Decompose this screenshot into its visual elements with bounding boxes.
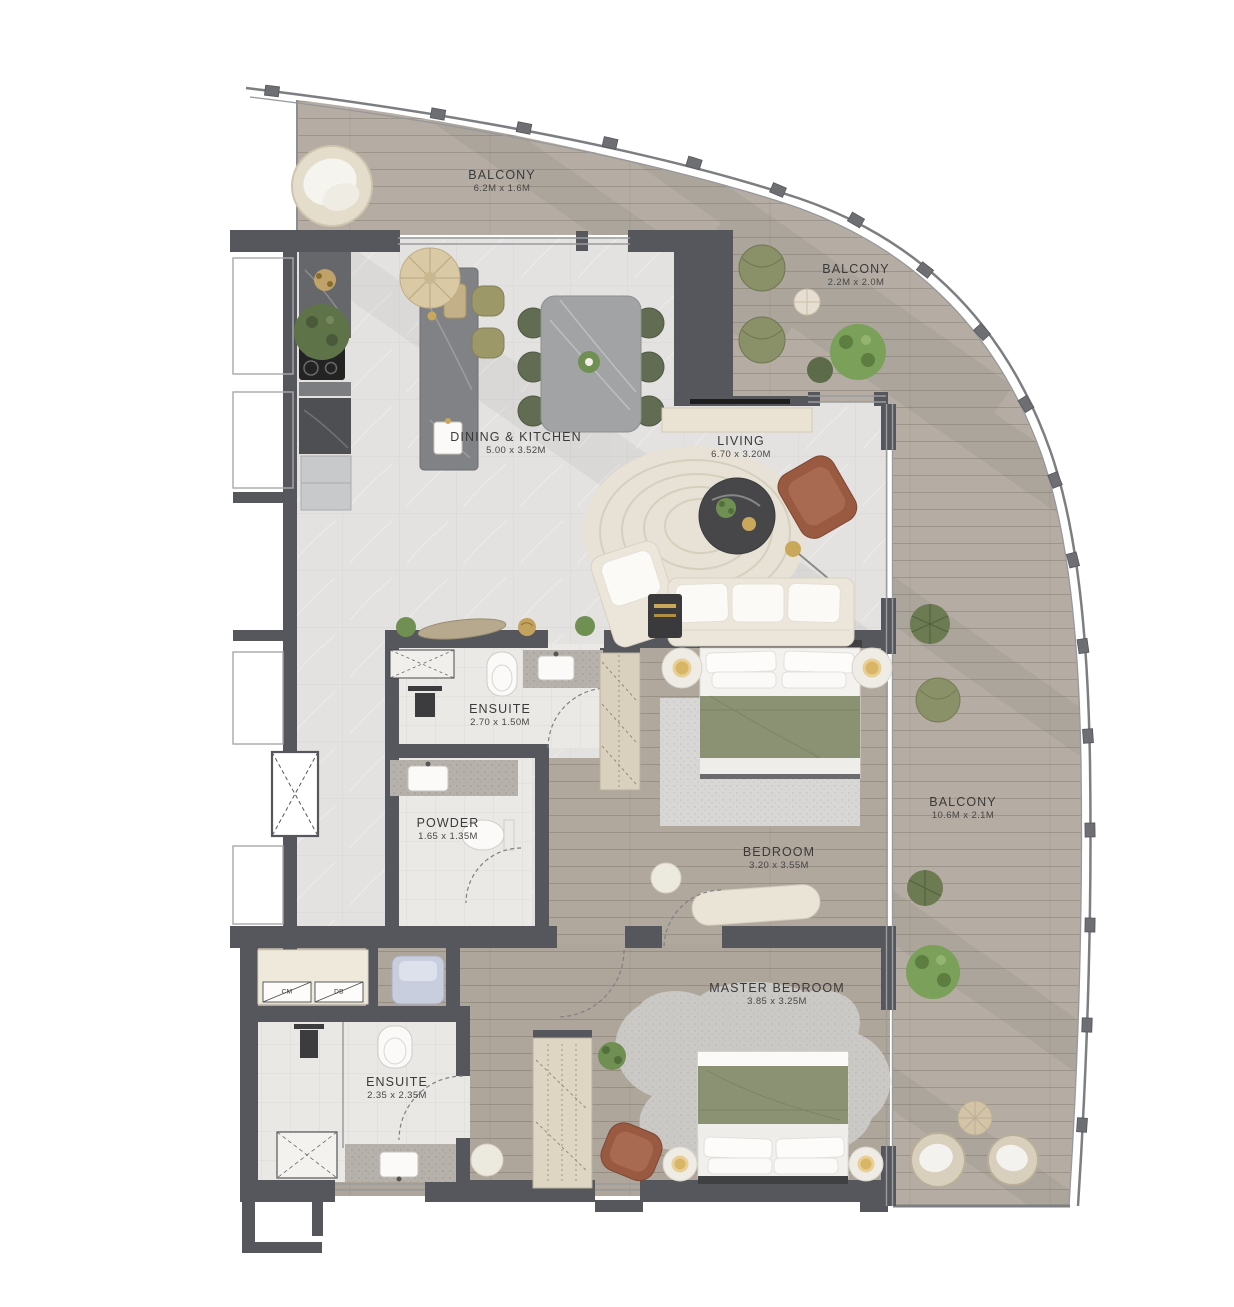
tv <box>690 399 790 404</box>
floor-plan-drawing <box>0 0 1234 1307</box>
plant <box>294 304 350 360</box>
grass <box>910 604 950 644</box>
tree <box>830 324 886 380</box>
grass <box>807 357 833 383</box>
shower-pan <box>277 1132 337 1178</box>
plant <box>598 1042 626 1070</box>
master-wardrobe <box>533 1038 592 1188</box>
pillow <box>784 651 855 673</box>
rattan-lounge-chair <box>911 1133 965 1187</box>
vanity <box>345 1144 456 1182</box>
pillow <box>774 1158 838 1174</box>
toilet <box>378 1026 412 1068</box>
rattan-pouf <box>794 289 820 315</box>
headboard <box>698 1176 848 1184</box>
vanity <box>523 650 603 688</box>
olive-cushion <box>916 678 960 722</box>
dining-set <box>518 296 664 432</box>
bed <box>700 648 860 779</box>
duvet <box>700 696 860 758</box>
tree <box>906 945 960 999</box>
wardrobe <box>600 653 640 790</box>
olive-daybed <box>739 245 785 291</box>
table-plant <box>716 498 736 518</box>
vanity <box>390 760 518 796</box>
pillow <box>782 672 846 688</box>
plant <box>396 617 416 637</box>
toilet <box>487 652 517 696</box>
master-bed <box>698 1052 848 1184</box>
pillow <box>706 651 777 673</box>
pillow <box>708 1158 772 1174</box>
rattan-pouf <box>400 248 460 308</box>
pouf <box>471 1144 503 1176</box>
grass <box>907 870 943 906</box>
sofa <box>668 578 854 646</box>
nightstand-lamp <box>852 648 892 688</box>
olive-daybed <box>739 317 785 363</box>
service-shaft <box>272 752 318 836</box>
pillow <box>776 1137 845 1159</box>
laundry-unit <box>392 956 444 1004</box>
nightstand-lamp <box>663 1147 697 1181</box>
pillow <box>704 1137 773 1159</box>
coffee-table <box>699 478 775 554</box>
toilet <box>462 820 514 850</box>
pouf <box>651 863 681 893</box>
rattan-lounge-chair <box>988 1135 1038 1185</box>
shower-pan <box>390 650 454 678</box>
nightstand-lamp <box>662 648 702 688</box>
pillow <box>712 672 776 688</box>
plant <box>575 616 595 636</box>
counter-decor <box>314 269 336 291</box>
island-sink <box>434 422 462 454</box>
floor-plan: BALCONY 6.2M x 1.6M BALCONY 2.2M x 2.0M … <box>0 0 1234 1307</box>
side-table-books <box>648 594 682 638</box>
gold-sculpture <box>518 618 536 636</box>
rattan-table <box>958 1101 992 1135</box>
duvet <box>698 1066 848 1124</box>
nightstand-lamp <box>849 1147 883 1181</box>
round-lounge-chair <box>292 146 372 226</box>
tv-console <box>662 408 812 432</box>
entry-closet <box>258 950 368 1004</box>
